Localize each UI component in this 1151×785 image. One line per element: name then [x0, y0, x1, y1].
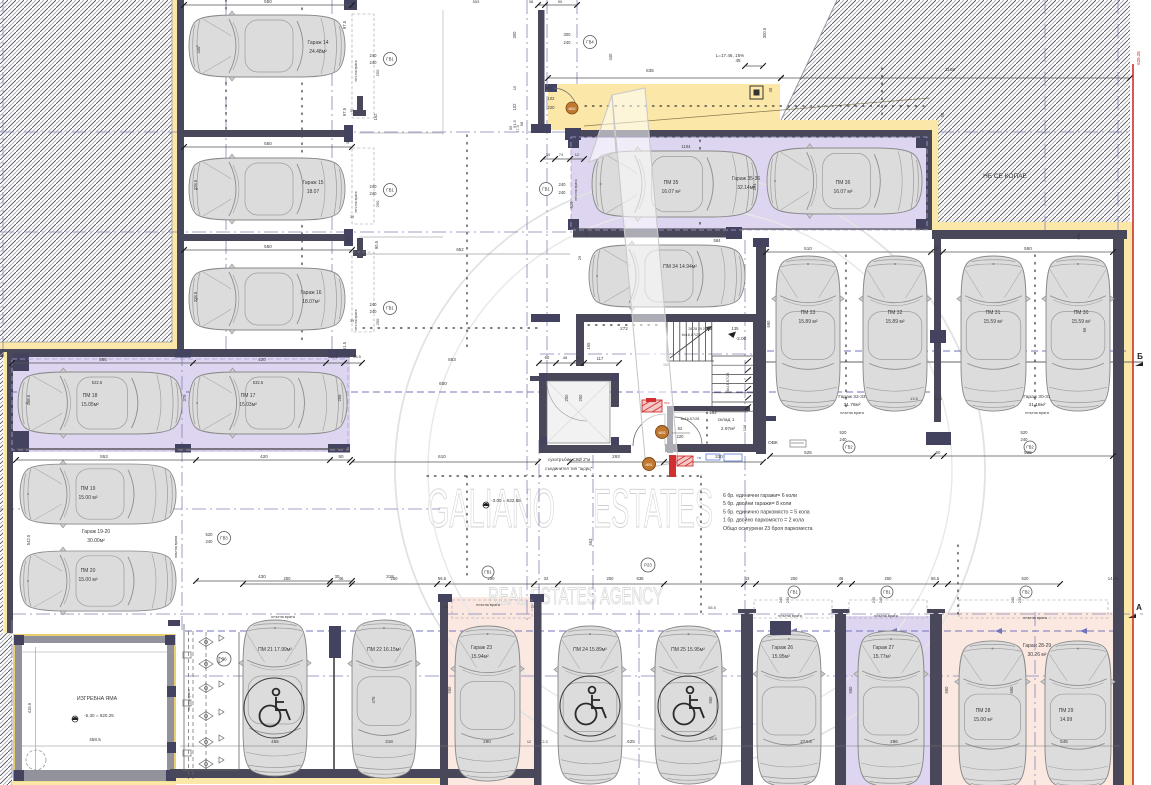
- svg-text:525: 525: [804, 450, 812, 455]
- svg-text:-2.00: -2.00: [736, 336, 747, 341]
- svg-text:272: 272: [620, 326, 628, 331]
- svg-text:39: 39: [346, 238, 350, 242]
- svg-text:690: 690: [766, 320, 771, 328]
- svg-text:45: 45: [768, 87, 773, 92]
- svg-text:240: 240: [779, 597, 783, 603]
- svg-text:39: 39: [350, 319, 354, 323]
- svg-text:240: 240: [370, 309, 378, 314]
- svg-text:склад 1: склад 1: [718, 417, 735, 423]
- svg-text:12.5: 12.5: [585, 229, 589, 236]
- svg-text:625: 625: [627, 739, 635, 744]
- svg-text:Гараж 32-33: Гараж 32-33: [838, 394, 865, 400]
- svg-text:60: 60: [936, 450, 941, 455]
- svg-text:288.5: 288.5: [26, 394, 31, 405]
- svg-text:286: 286: [890, 739, 898, 744]
- svg-text:38: 38: [934, 246, 939, 251]
- svg-text:300.5: 300.5: [762, 27, 767, 38]
- svg-text:ПМ 25 15.95м²: ПМ 25 15.95м²: [671, 647, 705, 653]
- svg-text:15.00 м²: 15.00 м²: [973, 717, 992, 723]
- svg-text:17.5: 17.5: [516, 125, 520, 132]
- svg-text:240: 240: [1011, 597, 1015, 603]
- svg-text:550: 550: [264, 244, 272, 249]
- svg-text:плътна врата: плътна врата: [271, 615, 296, 619]
- svg-text:328.5: 328.5: [193, 179, 198, 190]
- svg-text:ПМ 30: ПМ 30: [1074, 310, 1089, 316]
- svg-text:ПМ 31: ПМ 31: [986, 310, 1001, 316]
- svg-text:25: 25: [576, 355, 581, 360]
- svg-text:6 бр. единични гаражи= 6 коли: 6 бр. единични гаражи= 6 коли: [723, 493, 797, 499]
- svg-text:12: 12: [527, 740, 531, 744]
- svg-text:15.59 м²: 15.59 м²: [1071, 319, 1090, 325]
- svg-text:117: 117: [597, 356, 604, 361]
- svg-text:Гараж 16: Гараж 16: [300, 290, 321, 296]
- svg-text:20: 20: [444, 605, 448, 609]
- svg-text:МВ2: МВ2: [659, 431, 666, 435]
- svg-text:МВ2: МВ2: [569, 107, 576, 111]
- svg-text:1 бр. двойно паркомясто = 2 ко: 1 бр. двойно паркомясто = 2 кола: [723, 517, 804, 524]
- svg-text:318: 318: [385, 739, 393, 744]
- svg-text:690: 690: [1076, 232, 1081, 240]
- svg-text:5 бр. двойни гаражи= 8 коли: 5 бр. двойни гаражи= 8 коли: [723, 500, 791, 507]
- svg-text:240: 240: [1021, 437, 1029, 442]
- svg-text:ESTATES: ESTATES: [593, 477, 713, 539]
- svg-text:550: 550: [1024, 246, 1032, 251]
- svg-text:610: 610: [438, 454, 446, 459]
- svg-text:60: 60: [545, 355, 550, 360]
- svg-text:ГВ1: ГВ1: [883, 590, 891, 595]
- svg-text:ПМ 32: ПМ 32: [888, 310, 903, 316]
- svg-text:15.00 м²: 15.00 м²: [78, 577, 97, 583]
- svg-text:плътна врата: плътна врата: [778, 614, 803, 618]
- svg-text:250: 250: [375, 69, 380, 76]
- svg-text:240: 240: [206, 539, 214, 544]
- svg-text:Гараж 27: Гараж 27: [873, 645, 894, 651]
- svg-text:Гараж 23: Гараж 23: [471, 645, 492, 651]
- svg-text:46: 46: [339, 576, 344, 581]
- svg-text:45: 45: [735, 58, 741, 63]
- svg-text:плътна врата: плътна врата: [354, 309, 358, 330]
- svg-text:31.18м²: 31.18м²: [1029, 402, 1046, 408]
- svg-text:532.5: 532.5: [253, 380, 264, 385]
- svg-text:629: 629: [569, 201, 574, 209]
- svg-text:584: 584: [714, 238, 722, 243]
- svg-text:Гараж 35-36: Гараж 35-36: [732, 176, 761, 182]
- svg-text:56: 56: [1082, 327, 1087, 332]
- svg-text:520: 520: [840, 430, 848, 435]
- svg-text:12: 12: [575, 152, 580, 157]
- svg-text:ПМ 17: ПМ 17: [241, 393, 256, 399]
- svg-text:430: 430: [258, 574, 266, 579]
- svg-text:ПМ 36: ПМ 36: [836, 180, 851, 186]
- svg-text:24.48м²: 24.48м²: [309, 49, 327, 55]
- svg-text:плътна врата: плътна врата: [874, 614, 899, 618]
- svg-text:635: 635: [646, 68, 654, 73]
- svg-text:652: 652: [456, 247, 464, 252]
- svg-text:51.5: 51.5: [342, 341, 347, 350]
- svg-text:550: 550: [264, 141, 272, 146]
- svg-text:32: 32: [544, 576, 549, 581]
- svg-text:39: 39: [350, 215, 354, 219]
- svg-text:525: 525: [1024, 450, 1032, 455]
- svg-text:Р23: Р23: [644, 563, 652, 568]
- svg-text:220: 220: [548, 105, 556, 110]
- svg-text:565: 565: [99, 357, 107, 362]
- svg-text:ГВ2: ГВ2: [1026, 445, 1034, 450]
- svg-text:14.99: 14.99: [1060, 717, 1073, 723]
- svg-text:56.5: 56.5: [438, 576, 447, 581]
- svg-text:ПМ 29: ПМ 29: [1059, 708, 1074, 714]
- svg-text:20: 20: [531, 605, 535, 609]
- svg-text:ПМ 35: ПМ 35: [664, 180, 679, 186]
- svg-text:МВ1: МВ1: [646, 463, 653, 467]
- svg-text:Гараж 30-31: Гараж 30-31: [1023, 394, 1050, 400]
- svg-text:30: 30: [546, 152, 551, 157]
- svg-text:ГВ1: ГВ1: [386, 57, 394, 62]
- svg-text:520: 520: [1021, 430, 1029, 435]
- svg-text:ГВ2: ГВ2: [1022, 590, 1030, 595]
- svg-text:240: 240: [370, 302, 378, 307]
- svg-text:550: 550: [848, 686, 853, 694]
- svg-text:420: 420: [258, 357, 266, 362]
- svg-text:ГВ1: ГВ1: [386, 188, 394, 193]
- svg-text:39: 39: [346, 140, 350, 144]
- svg-text:2.3: 2.3: [542, 740, 547, 744]
- svg-text:250: 250: [607, 576, 615, 581]
- svg-text:плътна врата: плътна врата: [187, 689, 191, 710]
- svg-text:550: 550: [447, 686, 452, 694]
- svg-text:240: 240: [879, 597, 883, 603]
- svg-text:Гараж 19-20: Гараж 19-20: [82, 529, 111, 535]
- svg-text:ГВ3: ГВ3: [220, 536, 228, 541]
- svg-text:-3.00 = 622.55: -3.00 = 622.55: [491, 498, 521, 503]
- svg-text:26 28 29 29 28: 26 28 29 29 28: [688, 327, 711, 331]
- svg-text:455: 455: [271, 739, 279, 744]
- svg-text:15: 15: [512, 85, 517, 90]
- svg-text:135: 135: [732, 326, 740, 331]
- svg-text:240: 240: [559, 182, 567, 187]
- svg-text:15.03м²: 15.03м²: [239, 402, 257, 408]
- svg-text:520: 520: [1022, 576, 1030, 581]
- svg-text:55.5: 55.5: [708, 606, 715, 610]
- svg-text:59: 59: [509, 126, 513, 130]
- svg-text:553: 553: [448, 357, 456, 362]
- svg-text:15.59 м²: 15.59 м²: [983, 319, 1002, 325]
- svg-text:ГВ2: ГВ2: [845, 445, 853, 450]
- svg-text:А: А: [1136, 603, 1142, 612]
- svg-text:плътна врата: плътна врата: [840, 411, 865, 415]
- svg-text:тв: тв: [697, 455, 701, 460]
- svg-text:1158: 1158: [945, 67, 955, 72]
- svg-text:46: 46: [839, 576, 844, 581]
- svg-text:30.26 м²: 30.26 м²: [1027, 652, 1046, 658]
- svg-text:ГВ1: ГВ1: [542, 187, 550, 192]
- svg-text:ГВ1: ГВ1: [484, 570, 492, 575]
- svg-text:310: 310: [715, 454, 723, 459]
- svg-text:102: 102: [548, 96, 556, 101]
- svg-text:250: 250: [791, 576, 799, 581]
- svg-text:8x16.67/28: 8x16.67/28: [681, 417, 700, 421]
- svg-text:415.5: 415.5: [27, 702, 32, 713]
- svg-text:15.94м²: 15.94м²: [471, 654, 489, 660]
- svg-text:542.5: 542.5: [26, 534, 31, 545]
- svg-text:290: 290: [483, 739, 491, 744]
- svg-text:16.07 м²: 16.07 м²: [833, 189, 852, 195]
- svg-text:250: 250: [375, 200, 380, 207]
- svg-text:15.89 м²: 15.89 м²: [885, 319, 904, 325]
- svg-text:240: 240: [370, 191, 378, 196]
- svg-text:15.89 м²: 15.89 м²: [798, 319, 817, 325]
- svg-text:240: 240: [1018, 597, 1022, 603]
- svg-text:30.00м²: 30.00м²: [87, 538, 105, 544]
- svg-text:600: 600: [439, 381, 447, 386]
- svg-text:ПМ 28: ПМ 28: [976, 708, 991, 714]
- svg-text:550: 550: [944, 686, 949, 694]
- svg-text:Общо осигурени 23 броя паркоме: Общо осигурени 23 броя паркоместа: [723, 526, 813, 532]
- svg-text:43: 43: [745, 576, 750, 581]
- svg-text:плътна врата: плътна врата: [1025, 411, 1050, 415]
- svg-text:15.00 м²: 15.00 м²: [78, 495, 97, 501]
- svg-text:2.97м²: 2.97м²: [721, 426, 736, 432]
- svg-text:550: 550: [1009, 686, 1014, 694]
- svg-text:REAL ESTATES AGENCY: REAL ESTATES AGENCY: [488, 583, 663, 610]
- svg-text:97.5: 97.5: [342, 107, 347, 116]
- svg-text:НЕ СЕ КОПАЕ: НЕ СЕ КОПАЕ: [983, 173, 1027, 180]
- svg-text:522.5: 522.5: [92, 380, 103, 385]
- svg-text:240: 240: [370, 184, 378, 189]
- svg-text:ПМ 33: ПМ 33: [801, 310, 816, 316]
- svg-text:ПК2: ПК2: [664, 401, 670, 405]
- svg-text:ГВ1: ГВ1: [790, 590, 798, 595]
- svg-text:ИЗГРЕБНА ЯМА: ИЗГРЕБНА ЯМА: [77, 696, 118, 702]
- svg-text:563: 563: [588, 538, 593, 546]
- svg-text:14.35: 14.35: [1108, 576, 1119, 581]
- svg-text:6x16.67/28: 6x16.67/28: [682, 333, 701, 337]
- svg-text:250: 250: [391, 576, 399, 581]
- svg-text:74: 74: [559, 152, 564, 157]
- svg-text:240: 240: [370, 53, 378, 58]
- svg-text:5 бр. единично паркомясто = 5: 5 бр. единично паркомясто = 5 кола: [723, 509, 810, 515]
- svg-text:13.5: 13.5: [910, 396, 919, 401]
- svg-text:61.5: 61.5: [330, 354, 339, 359]
- svg-text:240: 240: [840, 437, 848, 442]
- svg-text:553: 553: [473, 0, 480, 4]
- svg-text:97.5: 97.5: [342, 20, 347, 29]
- svg-text:545: 545: [1060, 739, 1068, 744]
- svg-text:90.5: 90.5: [374, 240, 379, 249]
- svg-text:плътна врата: плътна врата: [574, 179, 578, 200]
- svg-text:550: 550: [264, 0, 272, 4]
- svg-text:625.25: 625.25: [1136, 51, 1141, 65]
- svg-text:291: 291: [752, 183, 757, 191]
- svg-text:18.07м²: 18.07м²: [302, 299, 320, 305]
- svg-text:16.07 м²: 16.07 м²: [661, 189, 680, 195]
- svg-text:съединител тип “щорц”: съединител тип “щорц”: [545, 466, 593, 471]
- svg-text:200: 200: [564, 394, 569, 402]
- svg-text:550: 550: [708, 696, 713, 704]
- svg-text:29: 29: [577, 255, 582, 260]
- svg-text:плътна врата: плътна врата: [354, 60, 358, 81]
- svg-text:475: 475: [371, 696, 376, 704]
- svg-text:15.05м²: 15.05м²: [81, 402, 99, 408]
- svg-text:ПМ 34 14.94м²: ПМ 34 14.94м²: [663, 264, 697, 270]
- svg-text:15.95м²: 15.95м²: [772, 654, 790, 660]
- svg-text:Гараж 14: Гараж 14: [307, 40, 328, 46]
- svg-text:240: 240: [370, 60, 378, 65]
- svg-text:250: 250: [375, 318, 380, 325]
- svg-text:250: 250: [284, 576, 292, 581]
- svg-text:плътна врата: плътна врата: [476, 603, 501, 607]
- svg-text:18.07: 18.07: [307, 189, 320, 195]
- svg-text:сухотръбие СКØ 2″м: сухотръбие СКØ 2″м: [548, 457, 590, 462]
- svg-text:240: 240: [564, 40, 572, 45]
- svg-text:ПМ 20: ПМ 20: [81, 568, 96, 574]
- svg-text:плътна врата: плътна врата: [354, 191, 358, 212]
- svg-text:440: 440: [608, 53, 613, 61]
- svg-text:268: 268: [337, 394, 342, 402]
- svg-text:293: 293: [612, 454, 620, 459]
- svg-text:ГВ4: ГВ4: [586, 40, 594, 45]
- svg-text:90: 90: [558, 0, 563, 4]
- svg-text:ГВ1: ГВ1: [386, 306, 394, 311]
- svg-text:102: 102: [512, 103, 517, 111]
- svg-text:420: 420: [260, 454, 268, 459]
- svg-text:38: 38: [529, 0, 534, 4]
- svg-text:220: 220: [677, 434, 685, 439]
- svg-text:39: 39: [350, 109, 354, 113]
- svg-text:ПМ 18: ПМ 18: [83, 393, 98, 399]
- svg-text:6x16.67/28: 6x16.67/28: [726, 373, 730, 392]
- svg-text:240: 240: [786, 597, 790, 603]
- svg-text:39: 39: [350, 5, 354, 9]
- svg-text:240: 240: [559, 190, 567, 195]
- svg-text:274.5: 274.5: [800, 739, 812, 744]
- svg-text:200: 200: [578, 394, 583, 402]
- svg-text:55.5: 55.5: [353, 354, 362, 359]
- svg-text:50: 50: [940, 112, 945, 117]
- svg-text:263: 263: [710, 410, 718, 415]
- svg-text:ОВК: ОВК: [768, 440, 778, 446]
- svg-text:510: 510: [804, 246, 812, 251]
- svg-text:240: 240: [872, 597, 876, 603]
- svg-text:GALIANO: GALIANO: [427, 477, 555, 539]
- svg-text:15.5: 15.5: [709, 736, 718, 741]
- svg-text:300: 300: [512, 31, 517, 39]
- svg-text:15.77м²: 15.77м²: [873, 654, 891, 660]
- svg-text:плътна врата: плътна врата: [1023, 616, 1048, 620]
- svg-text:250: 250: [885, 576, 893, 581]
- svg-text:446: 446: [196, 46, 201, 54]
- svg-text:62: 62: [678, 426, 683, 431]
- svg-text:458.5: 458.5: [89, 737, 101, 742]
- svg-text:ПМ 19: ПМ 19: [81, 486, 96, 492]
- svg-text:1104: 1104: [681, 144, 691, 149]
- svg-text:ПМ 24 15.89м²: ПМ 24 15.89м²: [573, 647, 607, 653]
- svg-text:48: 48: [563, 355, 568, 360]
- svg-text:ПМ 22 16.15м²: ПМ 22 16.15м²: [367, 647, 401, 653]
- svg-text:Б: Б: [1137, 352, 1143, 361]
- svg-text:638: 638: [637, 576, 645, 581]
- svg-text:Гараж 15: Гараж 15: [302, 180, 323, 186]
- svg-text:60: 60: [338, 454, 344, 459]
- svg-text:-5.30 = 620.25: -5.30 = 620.25: [84, 713, 114, 718]
- svg-text:56.5: 56.5: [931, 576, 940, 581]
- svg-text:ПМ 21 17.99м²: ПМ 21 17.99м²: [258, 647, 292, 653]
- svg-text:113: 113: [742, 424, 747, 431]
- svg-text:плътна врата: плътна врата: [174, 536, 178, 558]
- svg-text:Гараж 26: Гараж 26: [772, 645, 793, 651]
- svg-text:Гараж 28-29: Гараж 28-29: [1023, 643, 1052, 649]
- svg-text:165: 165: [586, 342, 591, 350]
- svg-text:375: 375: [182, 394, 187, 402]
- svg-text:20.5: 20.5: [934, 396, 943, 401]
- svg-text:520: 520: [206, 532, 214, 537]
- svg-text:553: 553: [100, 454, 108, 459]
- svg-text:328.5: 328.5: [193, 291, 198, 302]
- svg-text:300: 300: [564, 32, 572, 37]
